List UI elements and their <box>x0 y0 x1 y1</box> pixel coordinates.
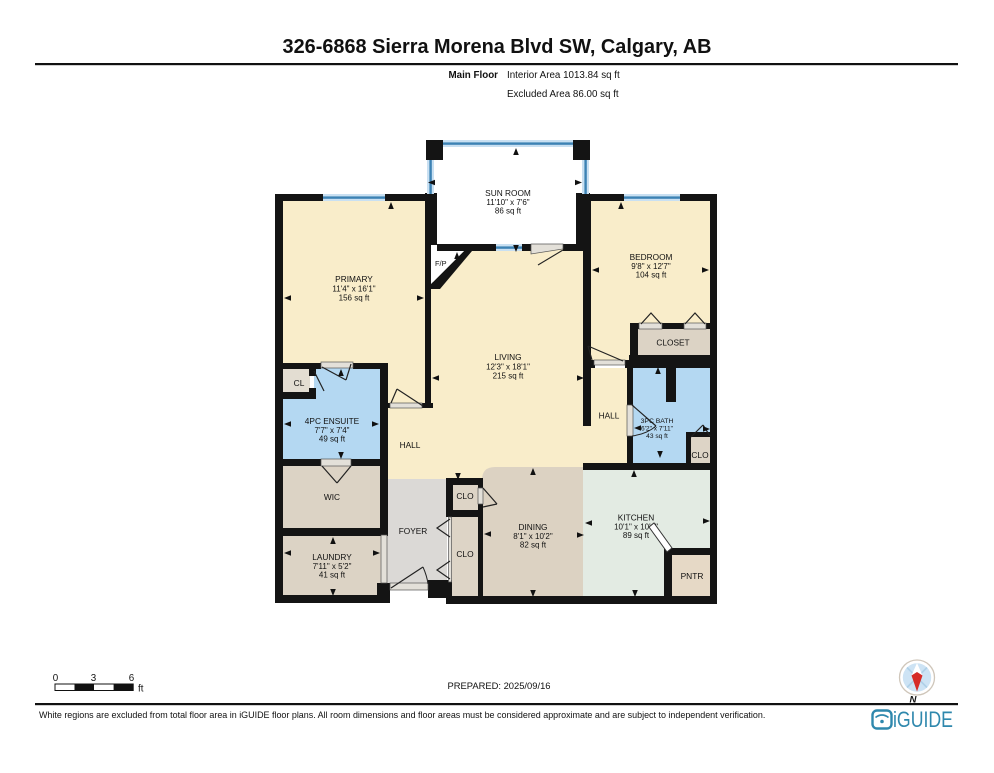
svg-text:LIVING: LIVING <box>494 352 521 362</box>
svg-text:6: 6 <box>129 673 135 684</box>
svg-text:4PC ENSUITE: 4PC ENSUITE <box>305 416 360 426</box>
svg-text:PRIMARY: PRIMARY <box>335 274 373 284</box>
svg-text:F/P: F/P <box>435 259 447 268</box>
svg-text:KITCHEN: KITCHEN <box>618 513 654 523</box>
svg-text:CLOSET: CLOSET <box>656 338 689 348</box>
svg-text:6'2" x 7'11": 6'2" x 7'11" <box>641 426 674 433</box>
svg-text:HALL: HALL <box>400 440 421 450</box>
svg-text:iGUIDE: iGUIDE <box>893 707 953 732</box>
svg-text:0: 0 <box>53 673 59 684</box>
svg-text:PREPARED: 2025/09/16: PREPARED: 2025/09/16 <box>447 680 550 691</box>
svg-text:ft: ft <box>138 684 144 695</box>
svg-text:Excluded Area 86.00 sq ft: Excluded Area 86.00 sq ft <box>507 89 619 100</box>
svg-text:CL: CL <box>294 378 305 388</box>
svg-text:11'4" x 16'1": 11'4" x 16'1" <box>332 285 375 294</box>
svg-text:43 sq ft: 43 sq ft <box>646 433 668 440</box>
svg-text:3PC BATH: 3PC BATH <box>641 418 674 425</box>
svg-text:82 sq ft: 82 sq ft <box>520 541 547 550</box>
svg-text:PNTR: PNTR <box>681 571 704 581</box>
svg-text:49 sq ft: 49 sq ft <box>319 435 346 444</box>
svg-text:326-6868 Sierra Morena Blvd SW: 326-6868 Sierra Morena Blvd SW, Calgary,… <box>283 36 712 58</box>
svg-text:BEDROOM: BEDROOM <box>630 252 673 262</box>
svg-text:215 sq ft: 215 sq ft <box>493 372 524 381</box>
svg-text:DINING: DINING <box>518 522 547 532</box>
svg-text:89 sq ft: 89 sq ft <box>623 531 650 540</box>
svg-text:FOYER: FOYER <box>399 526 428 536</box>
svg-text:SUN ROOM: SUN ROOM <box>485 188 531 198</box>
svg-text:CLO: CLO <box>691 450 709 460</box>
svg-text:41 sq ft: 41 sq ft <box>319 571 346 580</box>
svg-text:12'3" x 18'1": 12'3" x 18'1" <box>486 363 530 372</box>
svg-text:104 sq ft: 104 sq ft <box>636 271 667 280</box>
svg-text:Main Floor: Main Floor <box>448 70 498 81</box>
svg-text:Interior Area 1013.84 sq ft: Interior Area 1013.84 sq ft <box>507 70 620 81</box>
svg-text:WIC: WIC <box>324 492 340 502</box>
svg-text:156 sq ft: 156 sq ft <box>339 294 370 303</box>
svg-text:86 sq ft: 86 sq ft <box>495 207 522 216</box>
svg-text:CLO: CLO <box>456 491 474 501</box>
svg-text:HALL: HALL <box>599 411 620 421</box>
svg-text:White regions are excluded fro: White regions are excluded from total fl… <box>39 710 765 720</box>
svg-text:LAUNDRY: LAUNDRY <box>312 552 352 562</box>
svg-text:CLO: CLO <box>456 549 474 559</box>
svg-text:3: 3 <box>91 673 97 684</box>
